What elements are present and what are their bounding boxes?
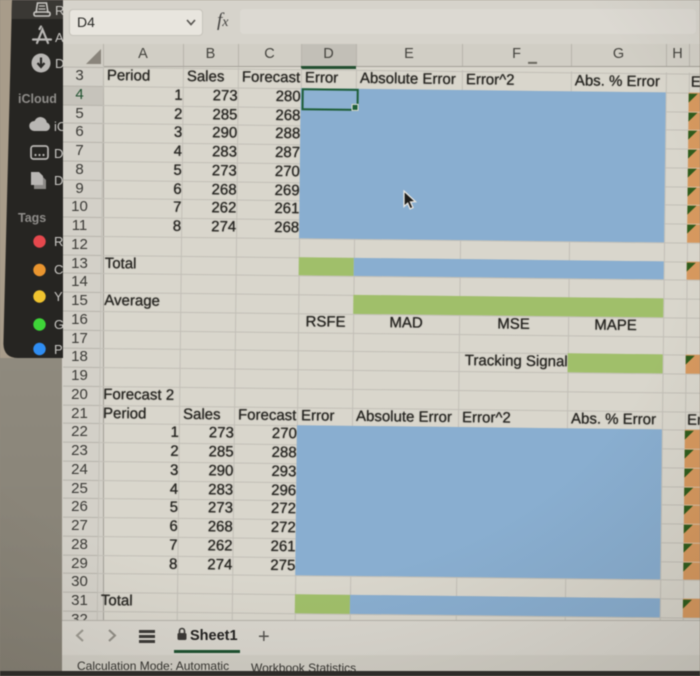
svg-text:D: D [54,173,63,188]
svg-text:P: P [54,342,63,357]
svg-text:D: D [54,146,63,161]
svg-text:R: R [55,3,63,18]
svg-text:A: A [55,30,63,45]
svg-text:Y: Y [54,289,63,304]
svg-text:G: G [54,317,63,332]
svg-text:C: C [54,262,63,277]
svg-text:iCloud: iCloud [18,92,57,106]
svg-text:iC: iC [54,119,63,134]
svg-text:Tags: Tags [18,211,46,225]
svg-text:D: D [55,56,63,71]
svg-text:R: R [54,234,63,249]
